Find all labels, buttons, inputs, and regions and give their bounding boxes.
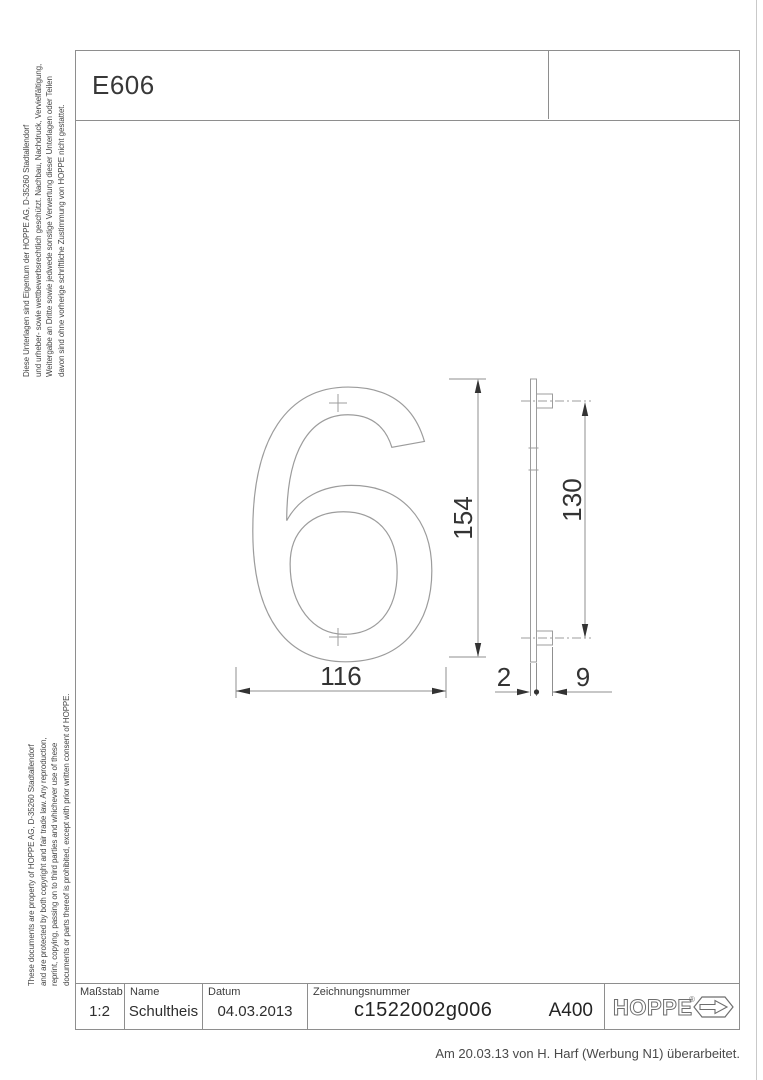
scale-value: 1:2	[75, 1003, 124, 1020]
dimension-thickness-2: 2	[495, 662, 539, 696]
title-block-number-cell: Zeichnungsnummer c1522002g006 A400	[308, 984, 605, 1030]
title-block: Maßstab 1:2 Name Schultheis Datum 04.03.…	[75, 983, 740, 1030]
plate-profile	[531, 379, 537, 662]
dim-label-9: 9	[576, 662, 590, 692]
dimension-hole-spacing-130: 130	[557, 402, 588, 638]
dimension-terminator-dot	[534, 689, 539, 694]
dim-label-116: 116	[320, 661, 361, 691]
dim-label-2: 2	[497, 662, 511, 692]
date-value: 04.03.2013	[203, 1003, 307, 1020]
title-block-date-cell: Datum 04.03.2013	[203, 984, 308, 1030]
dim-label-154: 154	[448, 496, 478, 539]
name-value: Schultheis	[125, 1003, 202, 1020]
hoppe-registered-mark: ®	[689, 995, 695, 1004]
date-label: Datum	[208, 986, 240, 998]
dimension-boss-depth-9: 9	[553, 647, 613, 696]
title-block-scale-cell: Maßstab 1:2	[75, 984, 125, 1030]
title-block-logo-cell: HOPPE ®	[605, 984, 740, 1030]
drawing-number-value: c1522002g006	[354, 999, 492, 1022]
hoppe-logo: HOPPE ®	[605, 984, 740, 1030]
title-block-name-cell: Name Schultheis	[125, 984, 203, 1030]
hoppe-logo-text: HOPPE	[613, 995, 693, 1020]
format-value: A400	[549, 1000, 593, 1022]
drawing-canvas: 6 154 116 130 2	[0, 0, 763, 1080]
scale-label: Maßstab	[80, 986, 123, 998]
dimension-height-154: 154	[448, 379, 486, 657]
name-label: Name	[130, 986, 159, 998]
drawing-number-label: Zeichnungsnummer	[313, 986, 410, 998]
technical-drawing-sheet: { "sheet": { "doc_code": "E606", "revisi…	[0, 0, 763, 1080]
dim-label-130: 130	[557, 478, 587, 521]
revision-note: Am 20.03.13 von H. Harf (Werbung N1) übe…	[380, 1046, 740, 1061]
